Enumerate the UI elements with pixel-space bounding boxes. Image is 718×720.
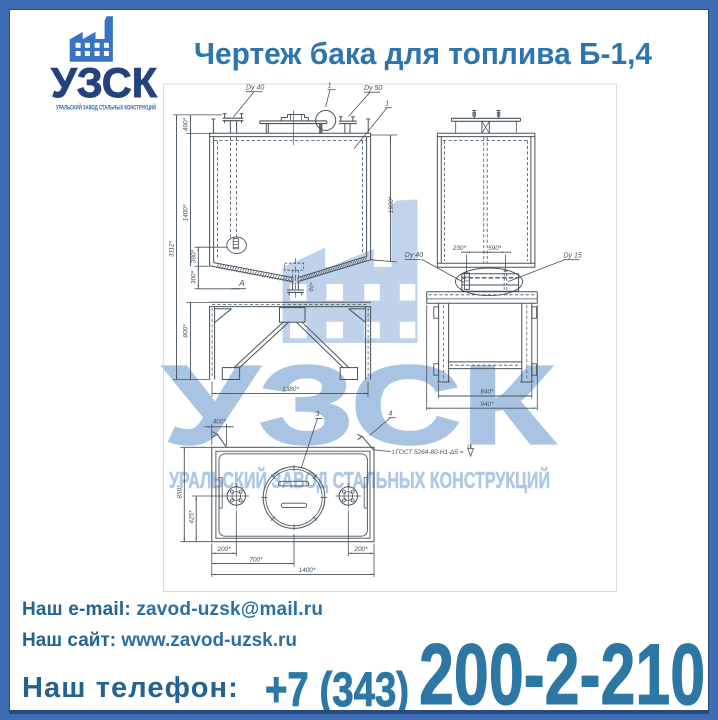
svg-text:400*: 400*: [183, 117, 190, 131]
svg-text:200*: 200*: [216, 546, 231, 553]
svg-text:1: 1: [392, 450, 395, 456]
svg-text:УЗСК: УЗСК: [163, 343, 556, 468]
svg-text:Dу 40: Dу 40: [405, 252, 423, 259]
svg-text:Dу 50: Dу 50: [364, 85, 382, 92]
svg-text:300*: 300*: [190, 270, 197, 284]
svg-text:3: 3: [316, 411, 320, 418]
svg-text:1400*: 1400*: [183, 204, 190, 221]
svg-text:400*: 400*: [213, 419, 227, 426]
svg-text:800*: 800*: [183, 324, 190, 338]
svg-text:ГОСТ 5264-80-Н1-Δ5 =: ГОСТ 5264-80-Н1-Δ5 =: [396, 450, 465, 456]
svg-text:1: 1: [328, 83, 332, 90]
svg-text:230*: 230*: [452, 245, 467, 252]
svg-text:200*: 200*: [353, 546, 368, 553]
svg-text:1900*: 1900*: [388, 196, 395, 213]
svg-text:1380*: 1380*: [282, 386, 299, 393]
svg-text:А: А: [238, 278, 245, 288]
svg-text:4: 4: [389, 411, 393, 418]
svg-text:Dу 15: Dу 15: [564, 253, 582, 260]
svg-text:УРАЛЬСКИЙ ЗАВОД СТАЛЬНЫХ КОНСТ: УРАЛЬСКИЙ ЗАВОД СТАЛЬНЫХ КОНСТРУКЦИЙ: [169, 466, 550, 493]
svg-text:Dу 40: Dу 40: [246, 85, 264, 92]
svg-text:940*: 940*: [480, 401, 494, 408]
svg-text:25: 25: [466, 444, 473, 449]
svg-text:840*: 840*: [480, 389, 494, 396]
svg-text:390*: 390*: [190, 249, 197, 263]
svg-text:425*: 425*: [188, 510, 195, 524]
svg-text:590*: 590*: [488, 245, 502, 252]
svg-text:850*: 850*: [176, 485, 183, 499]
svg-text:700*: 700*: [249, 556, 263, 563]
svg-text:1400*: 1400*: [299, 567, 316, 574]
svg-text:1: 1: [385, 101, 389, 108]
svg-text:3112*: 3112*: [169, 240, 176, 257]
